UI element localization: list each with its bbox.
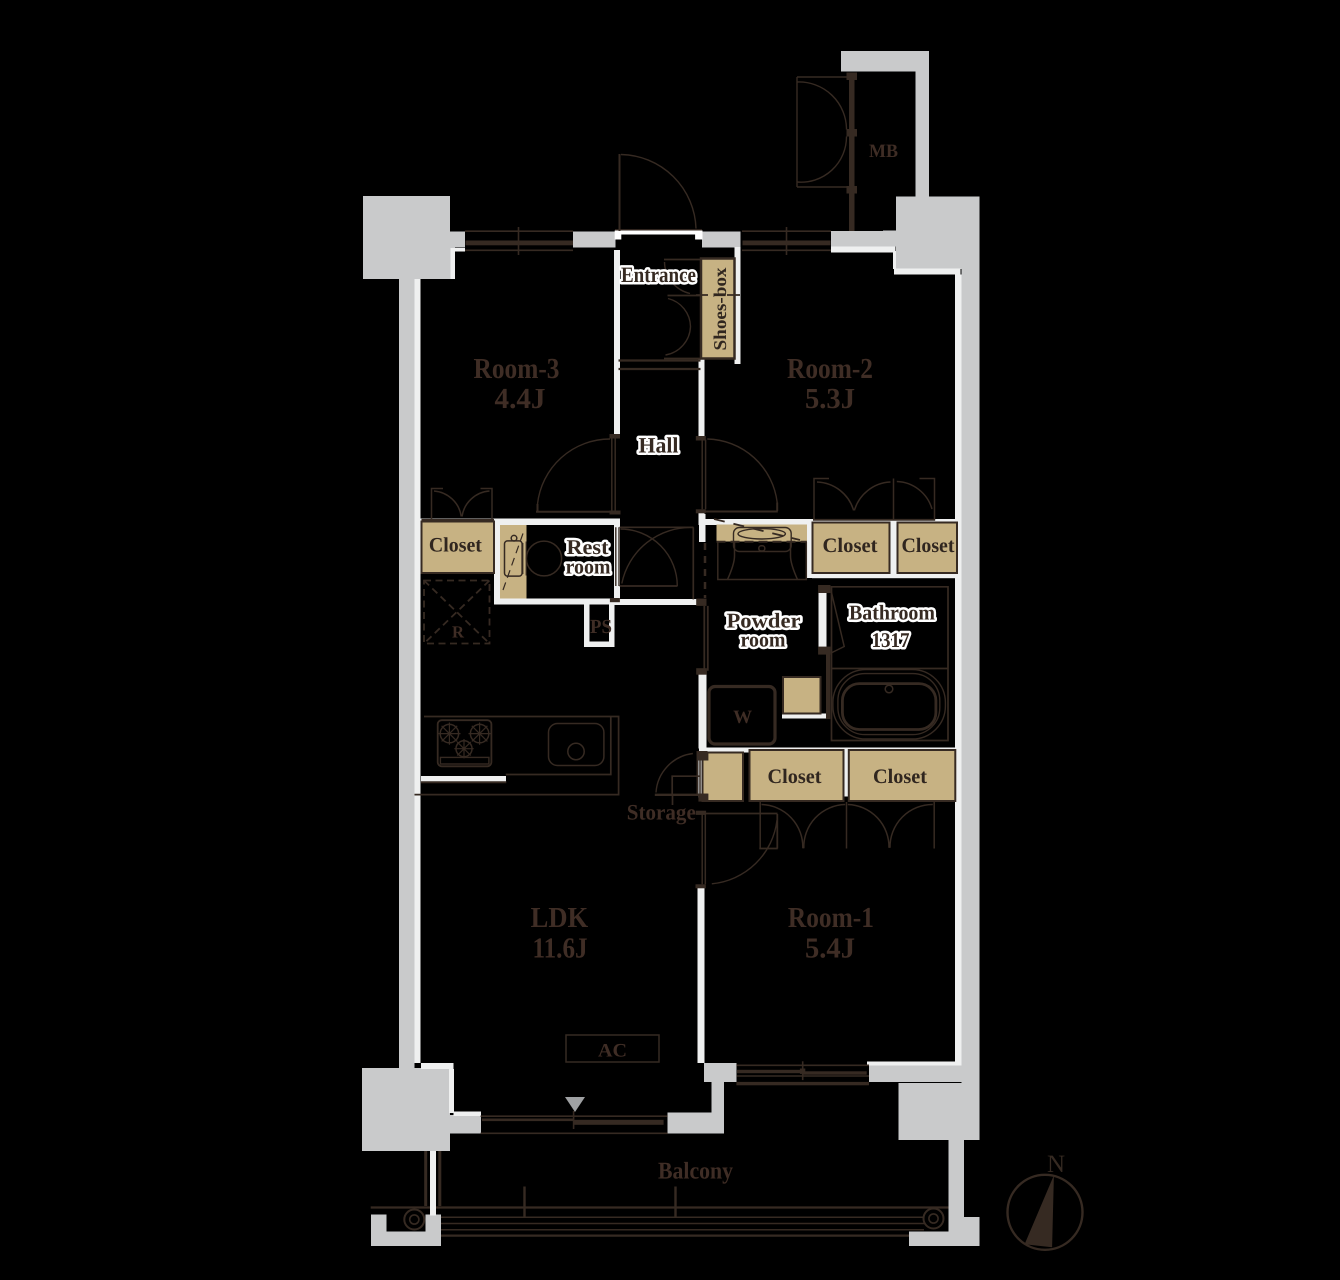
svg-text:Closet: Closet xyxy=(768,766,822,788)
svg-text:W: W xyxy=(733,707,752,728)
svg-text:Entrance: Entrance xyxy=(621,262,696,287)
svg-text:1317: 1317 xyxy=(872,628,910,652)
svg-text:Room-3: Room-3 xyxy=(474,353,560,385)
svg-text:LDK: LDK xyxy=(531,902,589,934)
svg-text:room: room xyxy=(741,628,786,652)
svg-text:Room-1: Room-1 xyxy=(788,902,874,934)
svg-text:Hall: Hall xyxy=(639,433,679,458)
svg-text:Bathroom: Bathroom xyxy=(849,601,935,625)
svg-text:R: R xyxy=(452,623,465,642)
svg-text:5.3J: 5.3J xyxy=(805,383,855,415)
svg-text:room: room xyxy=(566,555,611,579)
svg-text:Room-2: Room-2 xyxy=(787,353,873,385)
svg-text:Closet: Closet xyxy=(823,535,878,557)
svg-text:Balcony: Balcony xyxy=(658,1159,733,1185)
svg-text:5.4J: 5.4J xyxy=(805,932,855,964)
svg-text:Closet: Closet xyxy=(429,535,482,557)
svg-text:Closet: Closet xyxy=(873,766,927,788)
svg-text:4.4J: 4.4J xyxy=(495,383,546,415)
svg-text:Closet: Closet xyxy=(902,535,955,557)
svg-text:N: N xyxy=(1047,1151,1065,1178)
svg-text:PS: PS xyxy=(590,616,612,638)
svg-text:Storage: Storage xyxy=(627,800,696,825)
svg-text:MB: MB xyxy=(869,141,898,162)
svg-text:AC: AC xyxy=(598,1041,627,1062)
svg-text:Shoes-box: Shoes-box xyxy=(710,268,730,351)
svg-text:11.6J: 11.6J xyxy=(533,932,588,964)
